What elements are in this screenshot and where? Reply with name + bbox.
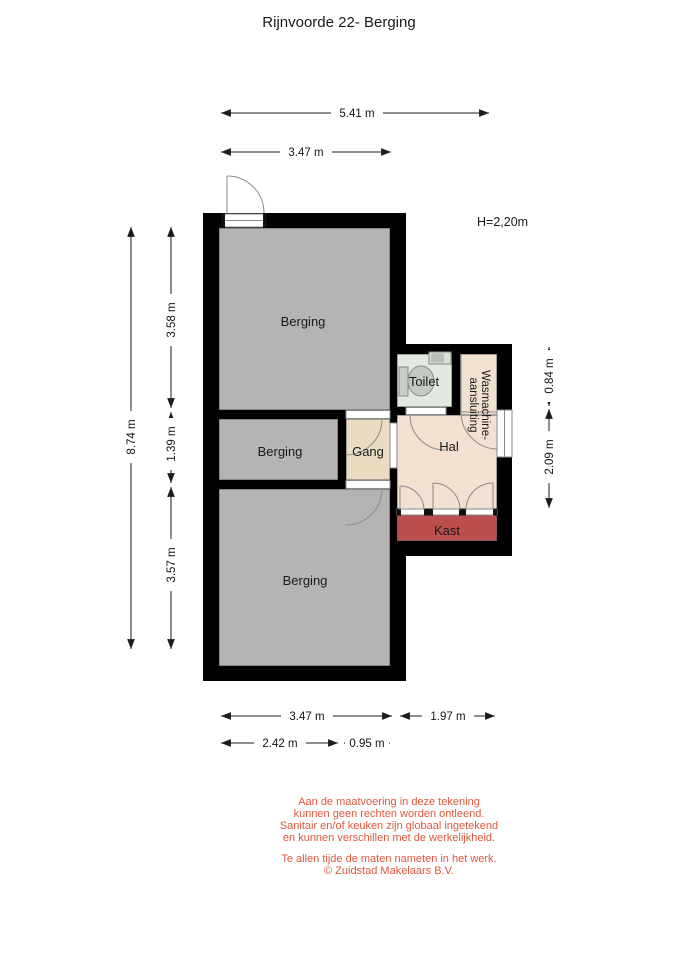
dim-bottom-left-inner-label: 2.42 m — [262, 738, 297, 750]
dim-bottom-left-label: 3.47 m — [289, 711, 324, 723]
floor-plan-svg: Rijnvoorde 22- Berging H=2,20m — [0, 0, 679, 960]
dim-left-top: 3.58 m — [164, 227, 178, 408]
dim-top-outer: 5.41 m — [221, 106, 489, 120]
dim-left-bottom-label: 3.57 m — [166, 547, 178, 582]
label-wasmachine-line1: Wasmachine- — [479, 370, 491, 440]
disclaimer-line-1: Aan de maatvoering in deze tekening — [298, 796, 480, 808]
label-kast: Kast — [434, 523, 460, 538]
dim-bottom-right-inner-label: 0.95 m — [349, 738, 384, 750]
label-gang: Gang — [352, 444, 384, 459]
disclaimer-line-3: Sanitair en/of keuken zijn globaal inget… — [280, 820, 498, 832]
dim-top-inner-label: 3.47 m — [288, 147, 323, 159]
disclaimer: Aan de maatvoering in deze tekening kunn… — [280, 796, 498, 877]
disclaimer-line-2: kunnen geen rechten worden ontleend. — [294, 808, 485, 820]
dim-left-total-label: 8.74 m — [126, 419, 138, 454]
dim-bottom-right: 1.97 m — [400, 709, 495, 723]
page-title: Rijnvoorde 22- Berging — [262, 14, 415, 31]
kast-door-line — [397, 509, 497, 515]
dim-left-total: 8.74 m — [124, 227, 138, 649]
disclaimer-line-5: Te allen tijde de maten nameten in het w… — [281, 853, 496, 865]
disclaimer-copyright: © Zuidstad Makelaars B.V. — [324, 865, 454, 877]
toilet-door-opening — [406, 408, 446, 415]
disclaimer-line-4: en kunnen verschillen met de werkelijkhe… — [283, 832, 495, 844]
label-berging-top: Berging — [281, 314, 326, 329]
label-wasmachine-line2: aansluiting — [467, 378, 479, 433]
dim-left-mid: 1.39 m — [164, 412, 178, 483]
label-berging-bottom: Berging — [283, 573, 328, 588]
label-hal: Hal — [439, 439, 459, 454]
dim-left-bottom: 3.57 m — [164, 487, 178, 649]
dim-bottom-right-inner: 0.95 m — [344, 736, 390, 750]
dim-right-top-label: 0.84 m — [544, 358, 556, 393]
dim-bottom-right-label: 1.97 m — [430, 711, 465, 723]
dim-bottom-left-inner: 2.42 m — [221, 736, 338, 750]
ceiling-height-label: H=2,20m — [477, 215, 528, 229]
entry-door-arc — [227, 176, 264, 213]
gang-top-opening — [346, 411, 390, 419]
label-toilet: Toilet — [409, 374, 440, 389]
dim-left-mid-label: 1.39 m — [166, 426, 178, 461]
gang-hal-opening — [390, 423, 397, 468]
gang-bottom-opening — [346, 481, 390, 489]
dim-top-inner: 3.47 m — [221, 145, 391, 159]
label-wasmachine: Wasmachine- aansluiting — [467, 370, 491, 440]
toilet-tank-icon — [399, 367, 408, 396]
dim-right-mid-label: 2.09 m — [544, 439, 556, 474]
dim-left-top-label: 3.58 m — [166, 302, 178, 337]
dim-right-top: 0.84 m — [542, 347, 556, 406]
label-berging-mid: Berging — [258, 444, 303, 459]
floor-plan-page: Rijnvoorde 22- Berging H=2,20m — [0, 0, 679, 960]
dim-right-mid: 2.09 m — [542, 409, 556, 508]
dim-top-outer-label: 5.41 m — [339, 108, 374, 120]
dim-bottom-left: 3.47 m — [221, 709, 392, 723]
sink-basin-icon — [431, 354, 444, 363]
